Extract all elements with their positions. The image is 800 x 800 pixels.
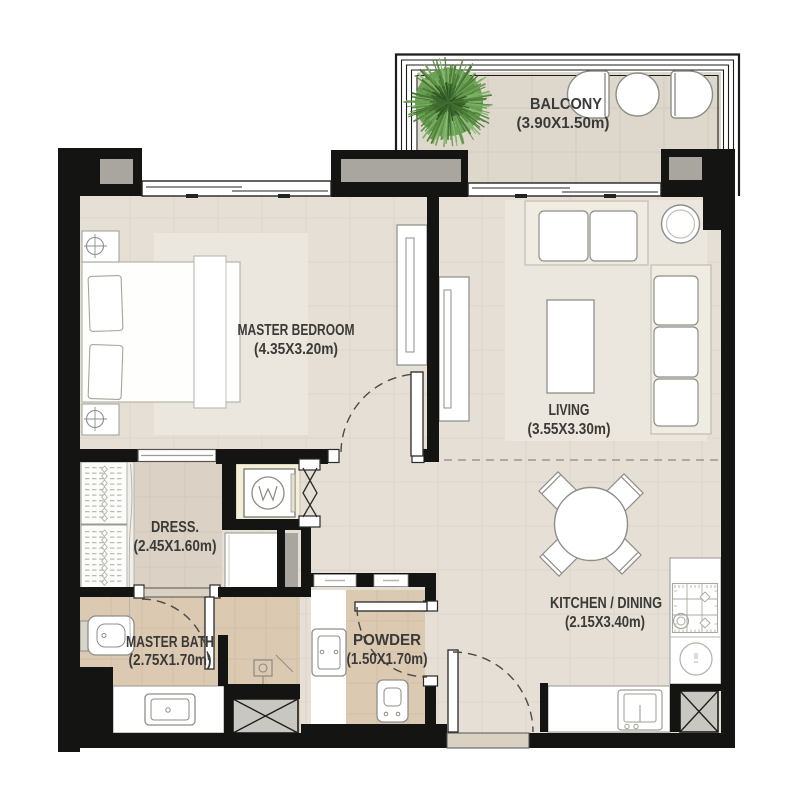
svg-text:MASTER BEDROOM: MASTER BEDROOM [238,322,355,339]
svg-text:(3.90X1.50m): (3.90X1.50m) [517,115,610,132]
svg-text:(2.75X1.70m): (2.75X1.70m) [129,652,212,669]
svg-text:(3.55X3.30m): (3.55X3.30m) [528,421,611,438]
svg-text:(4.35X3.20m): (4.35X3.20m) [254,341,338,358]
svg-text:(2.45X1.60m): (2.45X1.60m) [134,538,217,555]
svg-text:KITCHEN / DINING: KITCHEN / DINING [550,595,662,612]
svg-text:POWDER: POWDER [353,632,421,649]
svg-text:(2.15X3.40m): (2.15X3.40m) [565,614,645,631]
svg-text:(1.50X1.70m): (1.50X1.70m) [347,651,428,668]
svg-text:BALCONY: BALCONY [530,96,602,113]
svg-text:DRESS.: DRESS. [151,519,199,536]
svg-text:LIVING: LIVING [549,402,590,419]
svg-text:MASTER BATH: MASTER BATH [126,634,214,651]
